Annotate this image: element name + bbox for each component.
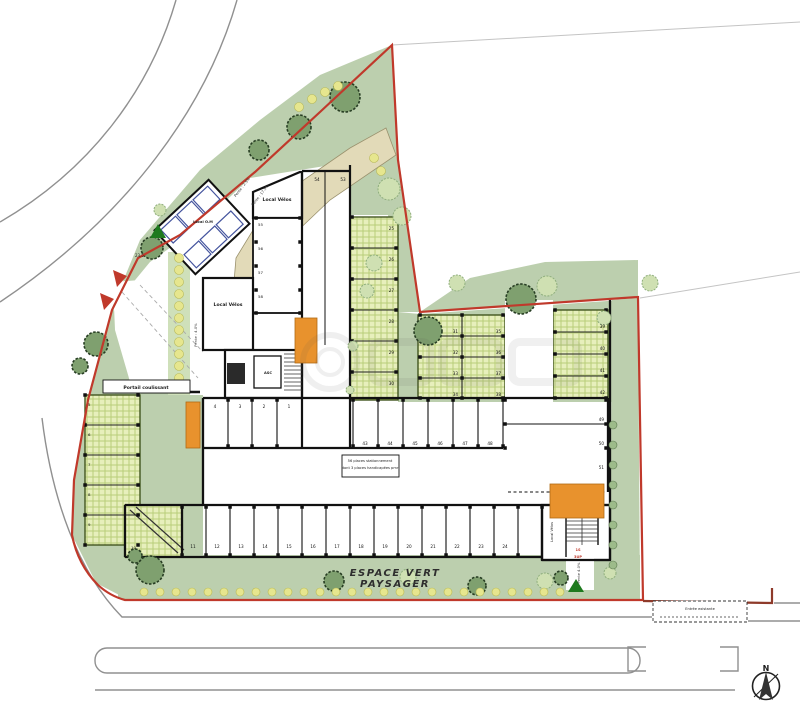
space-number: 10	[131, 545, 136, 550]
label-stair-code-2: 3UP	[574, 555, 582, 559]
space-number: 42	[600, 390, 606, 395]
space-number: 20	[406, 544, 412, 549]
space-number: 56	[258, 246, 263, 251]
street-median	[95, 648, 640, 673]
space-number: 23	[478, 544, 484, 549]
space-number: 2	[263, 404, 266, 409]
label-bin-store: Local O.M	[193, 220, 213, 224]
space-number: 45	[412, 441, 418, 446]
space-number: 58	[258, 294, 263, 299]
space-number: 22	[454, 544, 460, 549]
flow-arrow-2	[100, 293, 114, 310]
orange-access-southeast	[550, 484, 604, 518]
space-number: 50	[599, 441, 605, 446]
space-number: 12	[214, 544, 220, 549]
space-number: 53	[340, 177, 346, 182]
space-number: 30	[389, 381, 395, 386]
space-number: 16	[310, 544, 316, 549]
label-elevator: ASC	[264, 371, 272, 375]
space-number: 25	[389, 226, 395, 231]
orange-access-west	[186, 402, 200, 448]
space-number: 51	[599, 465, 605, 470]
space-number: 15	[286, 544, 292, 549]
space-number: 57	[258, 270, 263, 275]
label-espace-vert-1: ESPACE VERT	[350, 568, 441, 579]
site-plan-svg: N Local Vélos Local Vélos Local Vélos Lo…	[0, 0, 800, 703]
red-boundary-extension	[643, 588, 772, 603]
space-number: 35	[496, 329, 502, 334]
space-number: 48	[487, 441, 493, 446]
label-bike-room-main: Local Vélos	[214, 301, 243, 308]
plot-line-top	[392, 22, 800, 45]
space-number: 32	[453, 350, 459, 355]
north-letter: N	[763, 664, 770, 673]
space-number: 41	[600, 368, 606, 373]
space-number: 21	[430, 544, 436, 549]
space-number: 14	[262, 544, 268, 549]
space-number: 40	[600, 346, 606, 351]
space-number: 55	[258, 222, 263, 227]
label-stair-code-1: 1S	[575, 548, 581, 552]
duct-shaft	[227, 363, 245, 384]
label-note-line1: 56 places stationnement	[348, 459, 393, 463]
label-sliding-gate: Portail coulissant	[123, 385, 169, 391]
space-number: 36	[496, 350, 502, 355]
space-number: 26	[389, 257, 395, 262]
space-number: 31	[453, 329, 459, 334]
space-number: 1	[288, 404, 291, 409]
label-slope-west: Pente : 4.0%	[194, 323, 198, 347]
label-espace-vert-2: PAYSAGER	[360, 579, 430, 590]
space-number: 39	[600, 324, 606, 329]
space-number: 17	[334, 544, 340, 549]
space-number: 28	[389, 319, 395, 324]
label-dimension: 23.5	[135, 253, 144, 258]
space-number: 47	[462, 441, 468, 446]
bike-room-main	[203, 278, 253, 350]
space-number: 27	[389, 288, 395, 293]
north-needle	[759, 672, 773, 700]
space-number: 44	[387, 441, 393, 446]
space-number: 33	[453, 371, 459, 376]
space-number: 46	[437, 441, 443, 446]
space-number: 54	[314, 177, 320, 182]
space-number: 4	[214, 404, 217, 409]
space-number: 49	[599, 417, 605, 422]
space-number: 38	[496, 392, 502, 397]
label-existing-entrance: Entrée existante	[685, 607, 715, 611]
site-plan-page: N Local Vélos Local Vélos Local Vélos Lo…	[0, 0, 800, 703]
road-curve-outer	[0, 0, 176, 222]
label-bike-room-top: Local Vélos	[263, 196, 292, 203]
space-number: 18	[358, 544, 364, 549]
space-number: 24	[502, 544, 508, 549]
plot-line-right	[640, 272, 800, 298]
space-number: 11	[190, 544, 196, 549]
space-number: 13	[238, 544, 244, 549]
space-number: 29	[389, 350, 395, 355]
space-number: 34	[453, 392, 459, 397]
compass: N	[753, 664, 780, 700]
existing-entrance-box	[653, 601, 747, 622]
label-note-line2: dont 3 places handicapées pmr	[342, 466, 399, 470]
space-number: 19	[382, 544, 388, 549]
label-slope-south: Pente 4.0%	[577, 562, 581, 583]
space-number: 37	[496, 371, 502, 376]
street-box-right	[720, 647, 738, 671]
label-bike-room-se: Local Vélos	[550, 522, 554, 542]
space-number: 3	[239, 404, 242, 409]
space-number: 43	[362, 441, 368, 446]
